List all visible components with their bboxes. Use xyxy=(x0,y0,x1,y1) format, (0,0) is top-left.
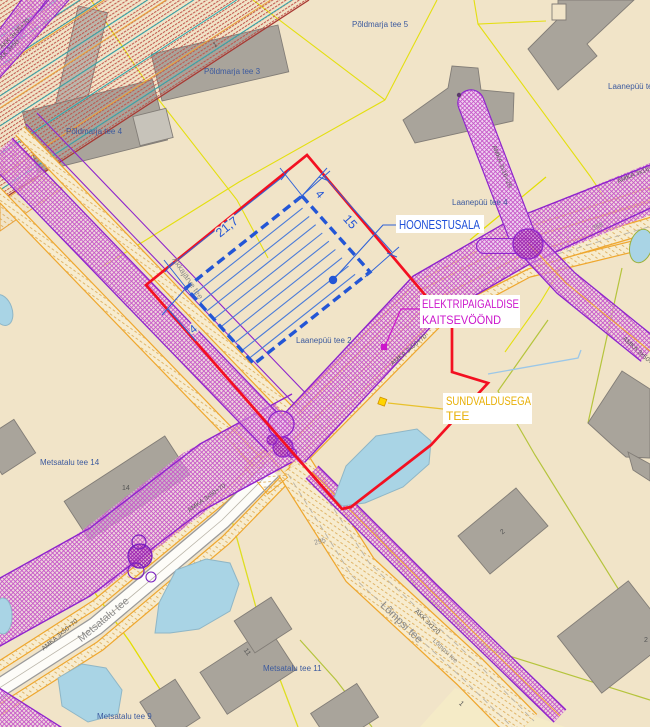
svg-text:Põldmarja tee 4: Põldmarja tee 4 xyxy=(66,127,123,136)
svg-text:2: 2 xyxy=(644,637,648,644)
svg-text:SUNDVALDUSEGA: SUNDVALDUSEGA xyxy=(446,394,531,408)
svg-text:Metsatalu tee 11: Metsatalu tee 11 xyxy=(263,664,322,673)
svg-text:HOONESTUSALA: HOONESTUSALA xyxy=(399,218,481,232)
svg-text:Põldmarja tee 3: Põldmarja tee 3 xyxy=(204,67,261,76)
svg-text:TEE: TEE xyxy=(446,409,469,423)
svg-text:ELEKTRIPAIGALDISE: ELEKTRIPAIGALDISE xyxy=(422,297,519,311)
svg-text:Põldmarja tee 5: Põldmarja tee 5 xyxy=(352,20,409,29)
svg-text:Metsatalu tee 9: Metsatalu tee 9 xyxy=(97,712,152,721)
svg-text:Metsatalu tee 14: Metsatalu tee 14 xyxy=(40,458,100,467)
svg-text:Laanepüü tee 2: Laanepüü tee 2 xyxy=(296,336,352,345)
svg-text:KAITSEVÖÖND: KAITSEVÖÖND xyxy=(422,313,501,327)
svg-text:14: 14 xyxy=(122,485,130,492)
svg-text:Laanepüü tee: Laanepüü tee xyxy=(608,82,650,91)
svg-text:Laanepüü tee 4: Laanepüü tee 4 xyxy=(452,198,508,207)
